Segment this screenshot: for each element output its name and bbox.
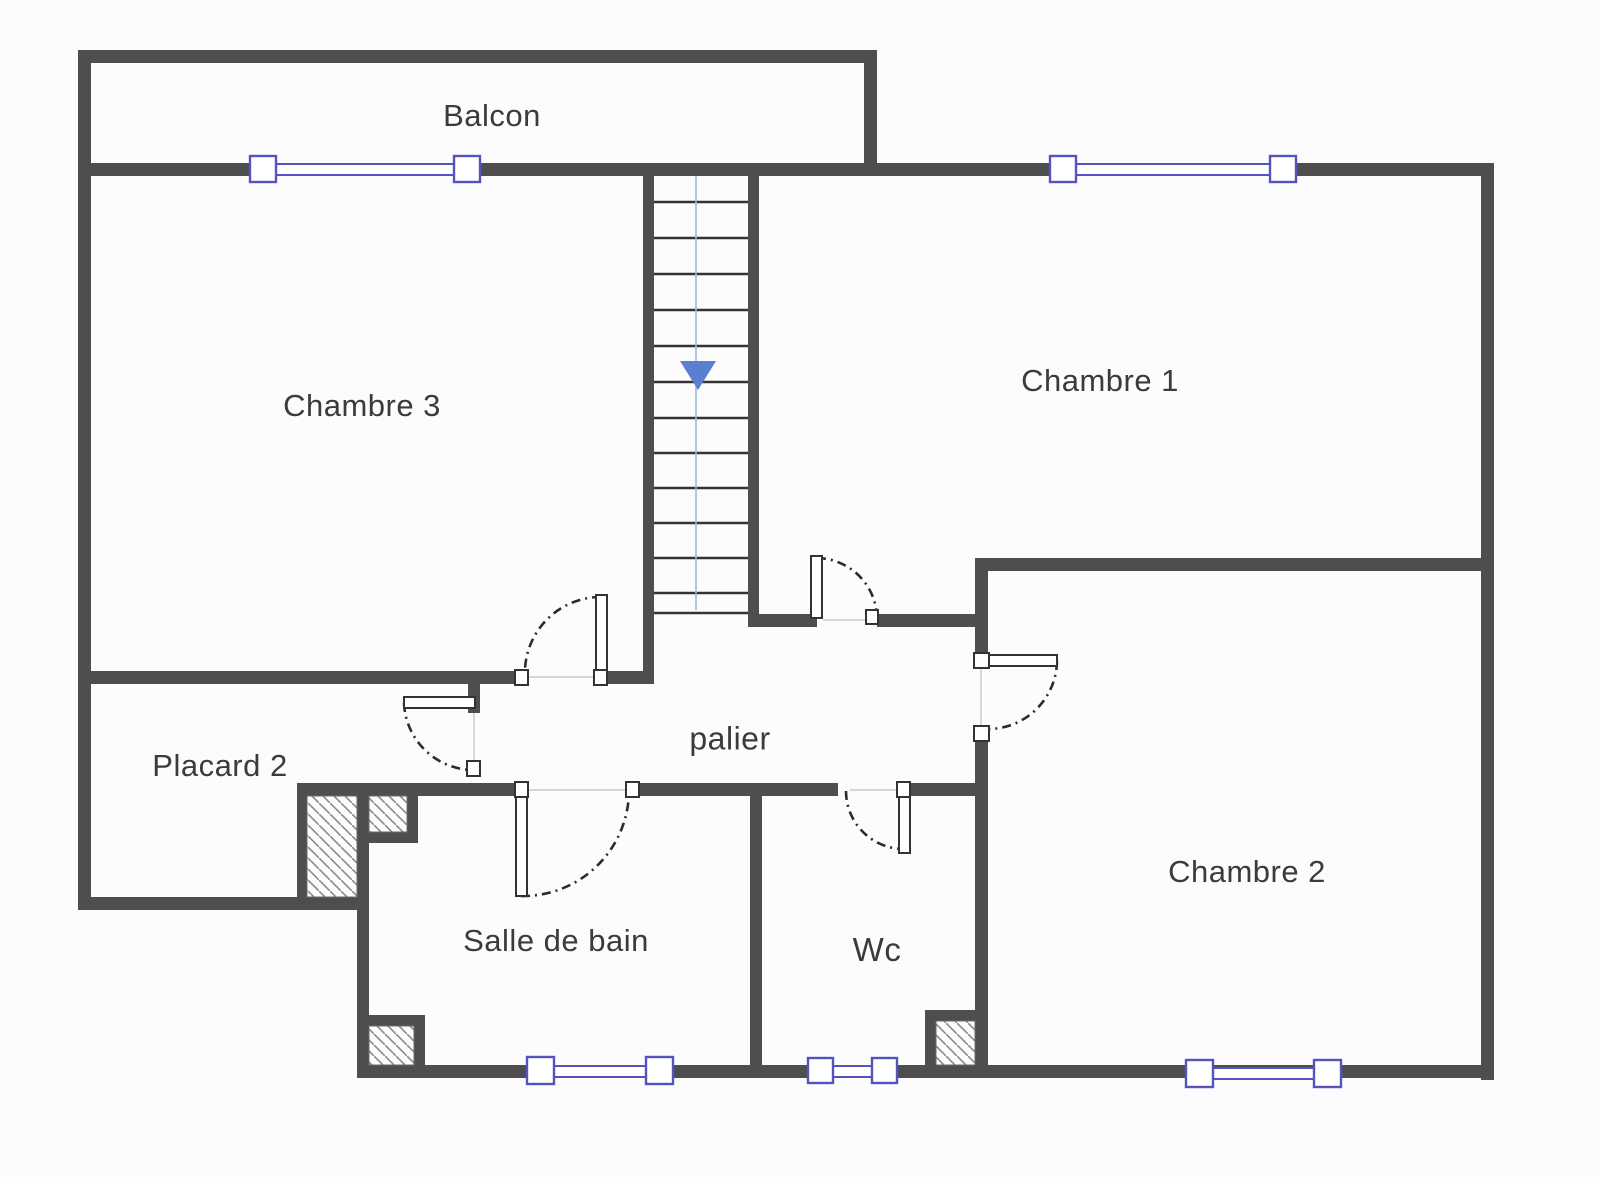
wall-bath-north-a [297, 783, 515, 796]
wall-palier-top-b [877, 614, 988, 627]
window-chambre-1 [1050, 156, 1296, 182]
stairs-down-arrow-icon [680, 361, 716, 390]
room-label-balcon: Balcon [443, 98, 541, 134]
wall-chambre1-chambre2 [975, 558, 1494, 571]
room-label-chambre-2: Chambre 2 [1168, 854, 1326, 890]
wall-balcony-top [78, 50, 877, 63]
wall-bath-west [357, 783, 369, 1078]
hatch-block-bath-sw [369, 1026, 414, 1065]
wall-bath-north-b [640, 783, 838, 796]
hatch-block-bath-nw [369, 796, 407, 832]
door-placard-2 [404, 697, 480, 776]
wall-stairs-right [748, 170, 759, 621]
wall-hatch4-left [925, 1010, 936, 1078]
wall-hatch1-left [297, 783, 307, 910]
room-label-chambre-1: Chambre 1 [1021, 363, 1179, 399]
wall-left-exterior [78, 50, 91, 910]
door-chambre-3 [515, 595, 607, 685]
door-chambre-2 [974, 653, 1057, 741]
room-label-salle-de-bain: Salle de bain [463, 923, 649, 959]
door-salle-de-bain [515, 782, 639, 896]
wall-balcony-right [864, 50, 877, 176]
window-balcon [250, 156, 480, 182]
room-label-palier: palier [689, 721, 770, 758]
room-label-chambre-3: Chambre 3 [283, 388, 441, 424]
hatch-block-placard [307, 796, 357, 897]
window-wc [808, 1058, 897, 1083]
door-wc [846, 782, 910, 853]
room-label-placard-2: Placard 2 [152, 748, 287, 784]
wall-chambre3-bottom-b [607, 671, 654, 684]
wall-palier-top-a [748, 614, 817, 627]
door-gap-lines [474, 620, 981, 790]
wall-hatch2-bottom [362, 832, 418, 843]
room-label-wc: Wc [853, 931, 902, 969]
walls [78, 50, 1494, 1080]
wall-chambre3-bottom-a [78, 671, 528, 684]
wall-right-exterior [1481, 163, 1494, 1080]
hatch-block-wc-se [936, 1021, 975, 1065]
door-chambre-1 [811, 556, 878, 624]
wall-bath-wc-separator [750, 783, 762, 1078]
staircase [654, 176, 748, 613]
wall-stairs-left [643, 170, 654, 684]
wall-chambre2-left-a [975, 558, 988, 655]
floor-plan-drawing [0, 0, 1600, 1177]
wall-hatch3-right [414, 1015, 425, 1078]
wall-placard-bottom [78, 897, 369, 910]
floor-plan-canvas: Balcon Chambre 3 Chambre 1 Chambre 2 Pla… [0, 0, 1600, 1177]
window-salle-de-bain [527, 1057, 673, 1084]
window-chambre-2 [1186, 1060, 1341, 1087]
wall-bath-north-c [905, 783, 988, 796]
